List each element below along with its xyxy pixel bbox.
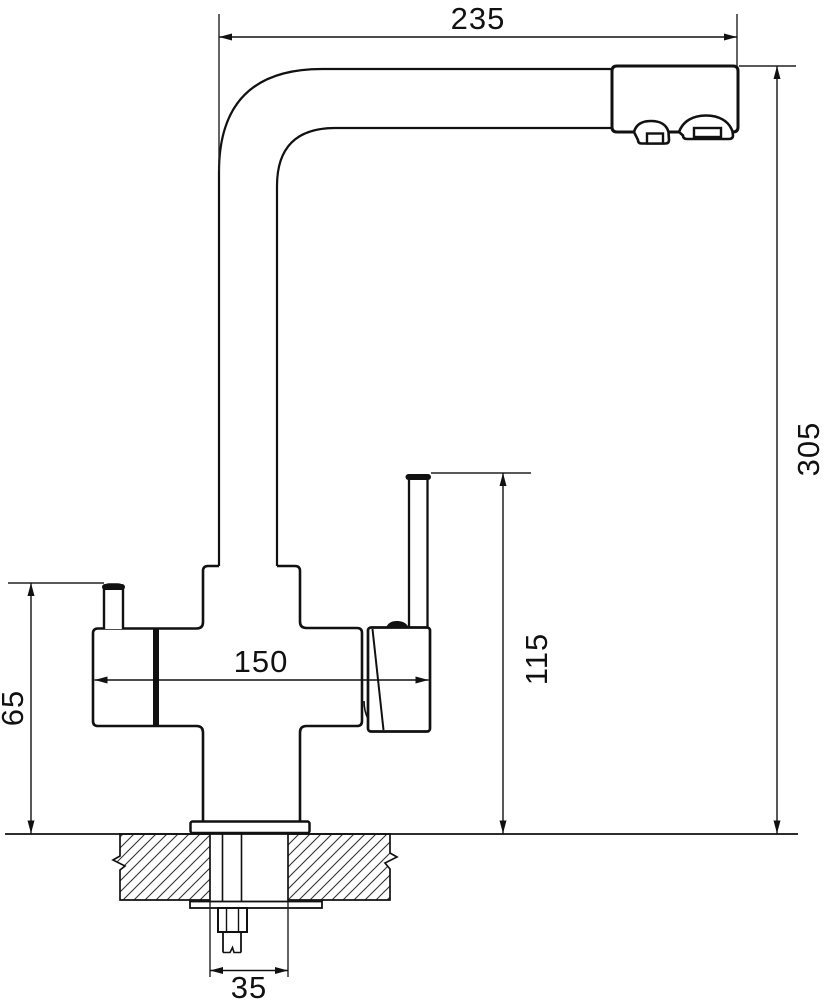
lever-base-joint xyxy=(386,621,409,628)
spout-outer-contour xyxy=(219,69,616,566)
dimension-overall-height: 305 xyxy=(739,66,824,834)
dimension-label-115: 115 xyxy=(519,633,554,685)
spout-inner-contour xyxy=(277,128,614,566)
dimension-label-235: 235 xyxy=(451,1,506,36)
faucet-body xyxy=(93,66,738,833)
countertop-section xyxy=(5,834,798,900)
dimension-label-150: 150 xyxy=(234,644,289,679)
technical-drawing-canvas: 235 305 115 65 150 35 xyxy=(0,0,824,1000)
left-handle xyxy=(104,585,123,630)
dimension-handle-height: 115 xyxy=(431,473,554,834)
mounting-nut xyxy=(218,908,247,932)
valve-body-cross xyxy=(93,566,362,822)
stud-break-line xyxy=(223,948,241,953)
dimension-label-35: 35 xyxy=(231,970,267,1000)
dimension-side-outlet-height: 65 xyxy=(0,583,104,834)
aerator-right-notch xyxy=(694,128,721,137)
base-flange xyxy=(191,822,310,834)
counter-block-right xyxy=(288,834,397,900)
dimension-label-305: 305 xyxy=(791,422,824,477)
dimension-label-65: 65 xyxy=(0,690,30,726)
aerator-left-notch xyxy=(647,134,663,144)
counter-block-left xyxy=(113,834,210,900)
faucet-drawing: 235 305 115 65 150 35 xyxy=(0,0,824,1000)
